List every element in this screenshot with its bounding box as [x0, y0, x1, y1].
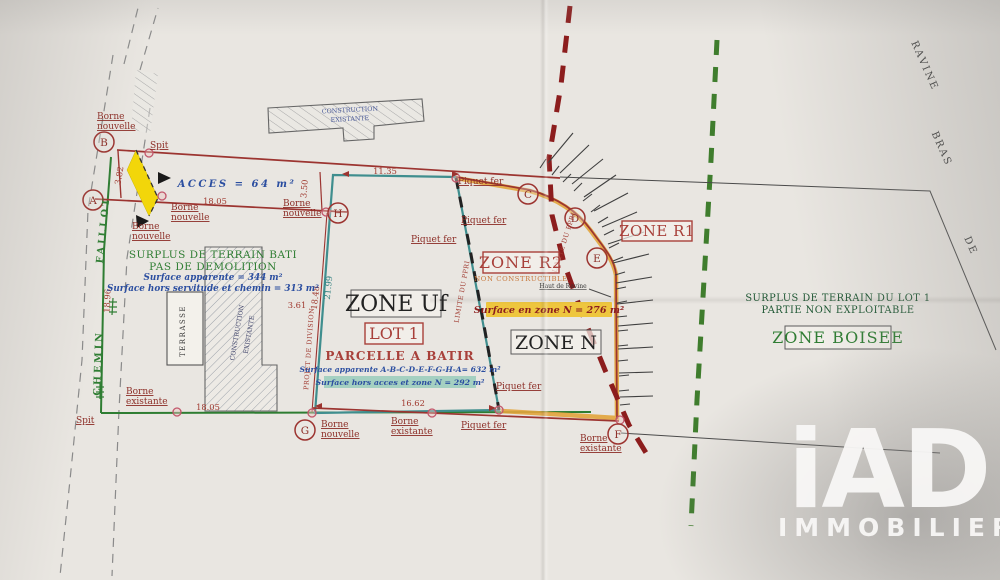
- measure-11-35: 11.35: [373, 166, 397, 176]
- spit-label: Spit: [150, 141, 169, 151]
- piquet-fer-label: Piquet fer: [496, 382, 542, 392]
- surplus-lot1-line2: PARTIE NON EXPLOITABLE: [762, 305, 915, 316]
- borne-existante-label: Borne: [391, 417, 418, 427]
- measure-21-99: 21.99: [322, 275, 334, 300]
- svg-text:existante: existante: [126, 397, 168, 407]
- measure-18-05: 18.05: [203, 196, 227, 206]
- terrasse-label: TERRASSE: [179, 305, 187, 357]
- svg-text:nouvelle: nouvelle: [97, 122, 136, 132]
- svg-text:existante: existante: [580, 444, 622, 454]
- projet-division-label: PROJET DE DIVISION: [302, 307, 316, 390]
- svg-text:nouvelle: nouvelle: [283, 209, 322, 219]
- bras-label: BRAS: [929, 130, 954, 168]
- point-a: A: [88, 195, 97, 207]
- borne-nouvelle-label: Borne: [97, 112, 124, 122]
- borne-existante-label: Borne: [126, 387, 153, 397]
- borne-nouvelle-label: Borne: [171, 203, 198, 213]
- chemin-label: CHEMIN: [92, 330, 105, 396]
- piquet-fer-label: Piquet fer: [461, 216, 507, 226]
- green-dashed-line: [691, 40, 717, 526]
- spit-label: Spit: [76, 416, 95, 426]
- point-b: B: [100, 137, 108, 149]
- zone-n-title: ZONE N: [515, 332, 597, 354]
- point-c: C: [524, 189, 532, 201]
- lot1-surface1: Surface apparente A-B-C-D-E-F-G-H-A= 632…: [299, 365, 501, 374]
- borne-existante-label: Borne: [580, 434, 607, 444]
- piquet-fer-label: Piquet fer: [458, 177, 504, 187]
- surplus-lot1-line1: SURPLUS DE TERRAIN DU LOT 1: [745, 293, 930, 304]
- borne-nouvelle-label: Borne: [283, 199, 310, 209]
- measure-3-82: 3.82: [113, 166, 126, 186]
- zone-n-block: ZONE N: [511, 330, 601, 354]
- svg-text:nouvelle: nouvelle: [321, 430, 360, 440]
- parcelle-a-batir: PARCELLE A BATIR: [325, 349, 474, 363]
- zone-r2-surface: Surface en zone N = 276 m²: [474, 305, 624, 316]
- limite-ppri-label: LIMITE DU PPRI: [453, 260, 472, 324]
- lot1-title: LOT 1: [369, 324, 419, 343]
- surface-hors-servitude: Surface hors servitude et chemin = 313 m…: [107, 284, 319, 294]
- direction-arrow: [158, 172, 171, 184]
- ravine-label: RAVINE: [908, 39, 940, 92]
- de-label: DE: [961, 235, 979, 257]
- svg-text:nouvelle: nouvelle: [171, 213, 210, 223]
- measure-3-50: 3.50: [298, 179, 310, 198]
- lot1-block: ZONE Uf LOT 1 PARCELLE A BATIR Surface a…: [299, 290, 501, 388]
- survey-plan-photo: A B C D E F G H 3.82 18.05 3.50 11.35 18…: [0, 0, 1000, 580]
- measure-3-61: 3.61: [288, 300, 306, 310]
- acces-label: ACCES = 64 m²: [177, 179, 297, 190]
- surface-apparente: Surface apparente = 344 m²: [144, 273, 283, 283]
- zone-r2-title: ZONE R2: [479, 253, 563, 272]
- point-h: H: [333, 208, 342, 220]
- borne-nouvelle-label: Borne: [321, 420, 348, 430]
- haut-de-ravine-label: Haut de Ravine: [539, 283, 587, 290]
- piquet-fer-label: Piquet fer: [411, 235, 457, 245]
- point-e: E: [593, 253, 601, 265]
- zone-r1-block: ZONE R1: [619, 221, 695, 241]
- zone-uf-title: ZONE Uf: [345, 292, 449, 317]
- left-parcel-texts: SURPLUS DE TERRAIN BATI PAS DE DEMOLITIO…: [107, 249, 319, 294]
- measure-16-62: 16.62: [401, 398, 425, 408]
- zone-r2-sub: NON CONSTRUCTIBLE: [474, 275, 567, 283]
- surplus-bati-title: SURPLUS DE TERRAIN BATI: [129, 249, 297, 261]
- zone-boisee-title: ZONE BOISEE: [772, 328, 904, 347]
- zone-r1-title: ZONE R1: [619, 222, 695, 240]
- lot1-surface2: Surface hors acces et zone N = 292 m²: [316, 378, 486, 387]
- right-parcel-block: SURPLUS DE TERRAIN DU LOT 1 PARTIE NON E…: [745, 293, 930, 349]
- svg-text:nouvelle: nouvelle: [132, 232, 171, 242]
- access-wedge: [127, 150, 171, 228]
- svg-text:PAS DE DEMOLITION: PAS DE DEMOLITION: [149, 261, 277, 273]
- borne-nouvelle-label: Borne: [132, 222, 159, 232]
- point-g: G: [301, 425, 309, 437]
- svg-text:existante: existante: [391, 427, 433, 437]
- measure-18-05-b: 18.05: [196, 402, 220, 412]
- plan-drawing: A B C D E F G H 3.82 18.05 3.50 11.35 18…: [0, 0, 1000, 580]
- piquet-fer-label: Piquet fer: [461, 421, 507, 431]
- point-f: F: [614, 429, 621, 441]
